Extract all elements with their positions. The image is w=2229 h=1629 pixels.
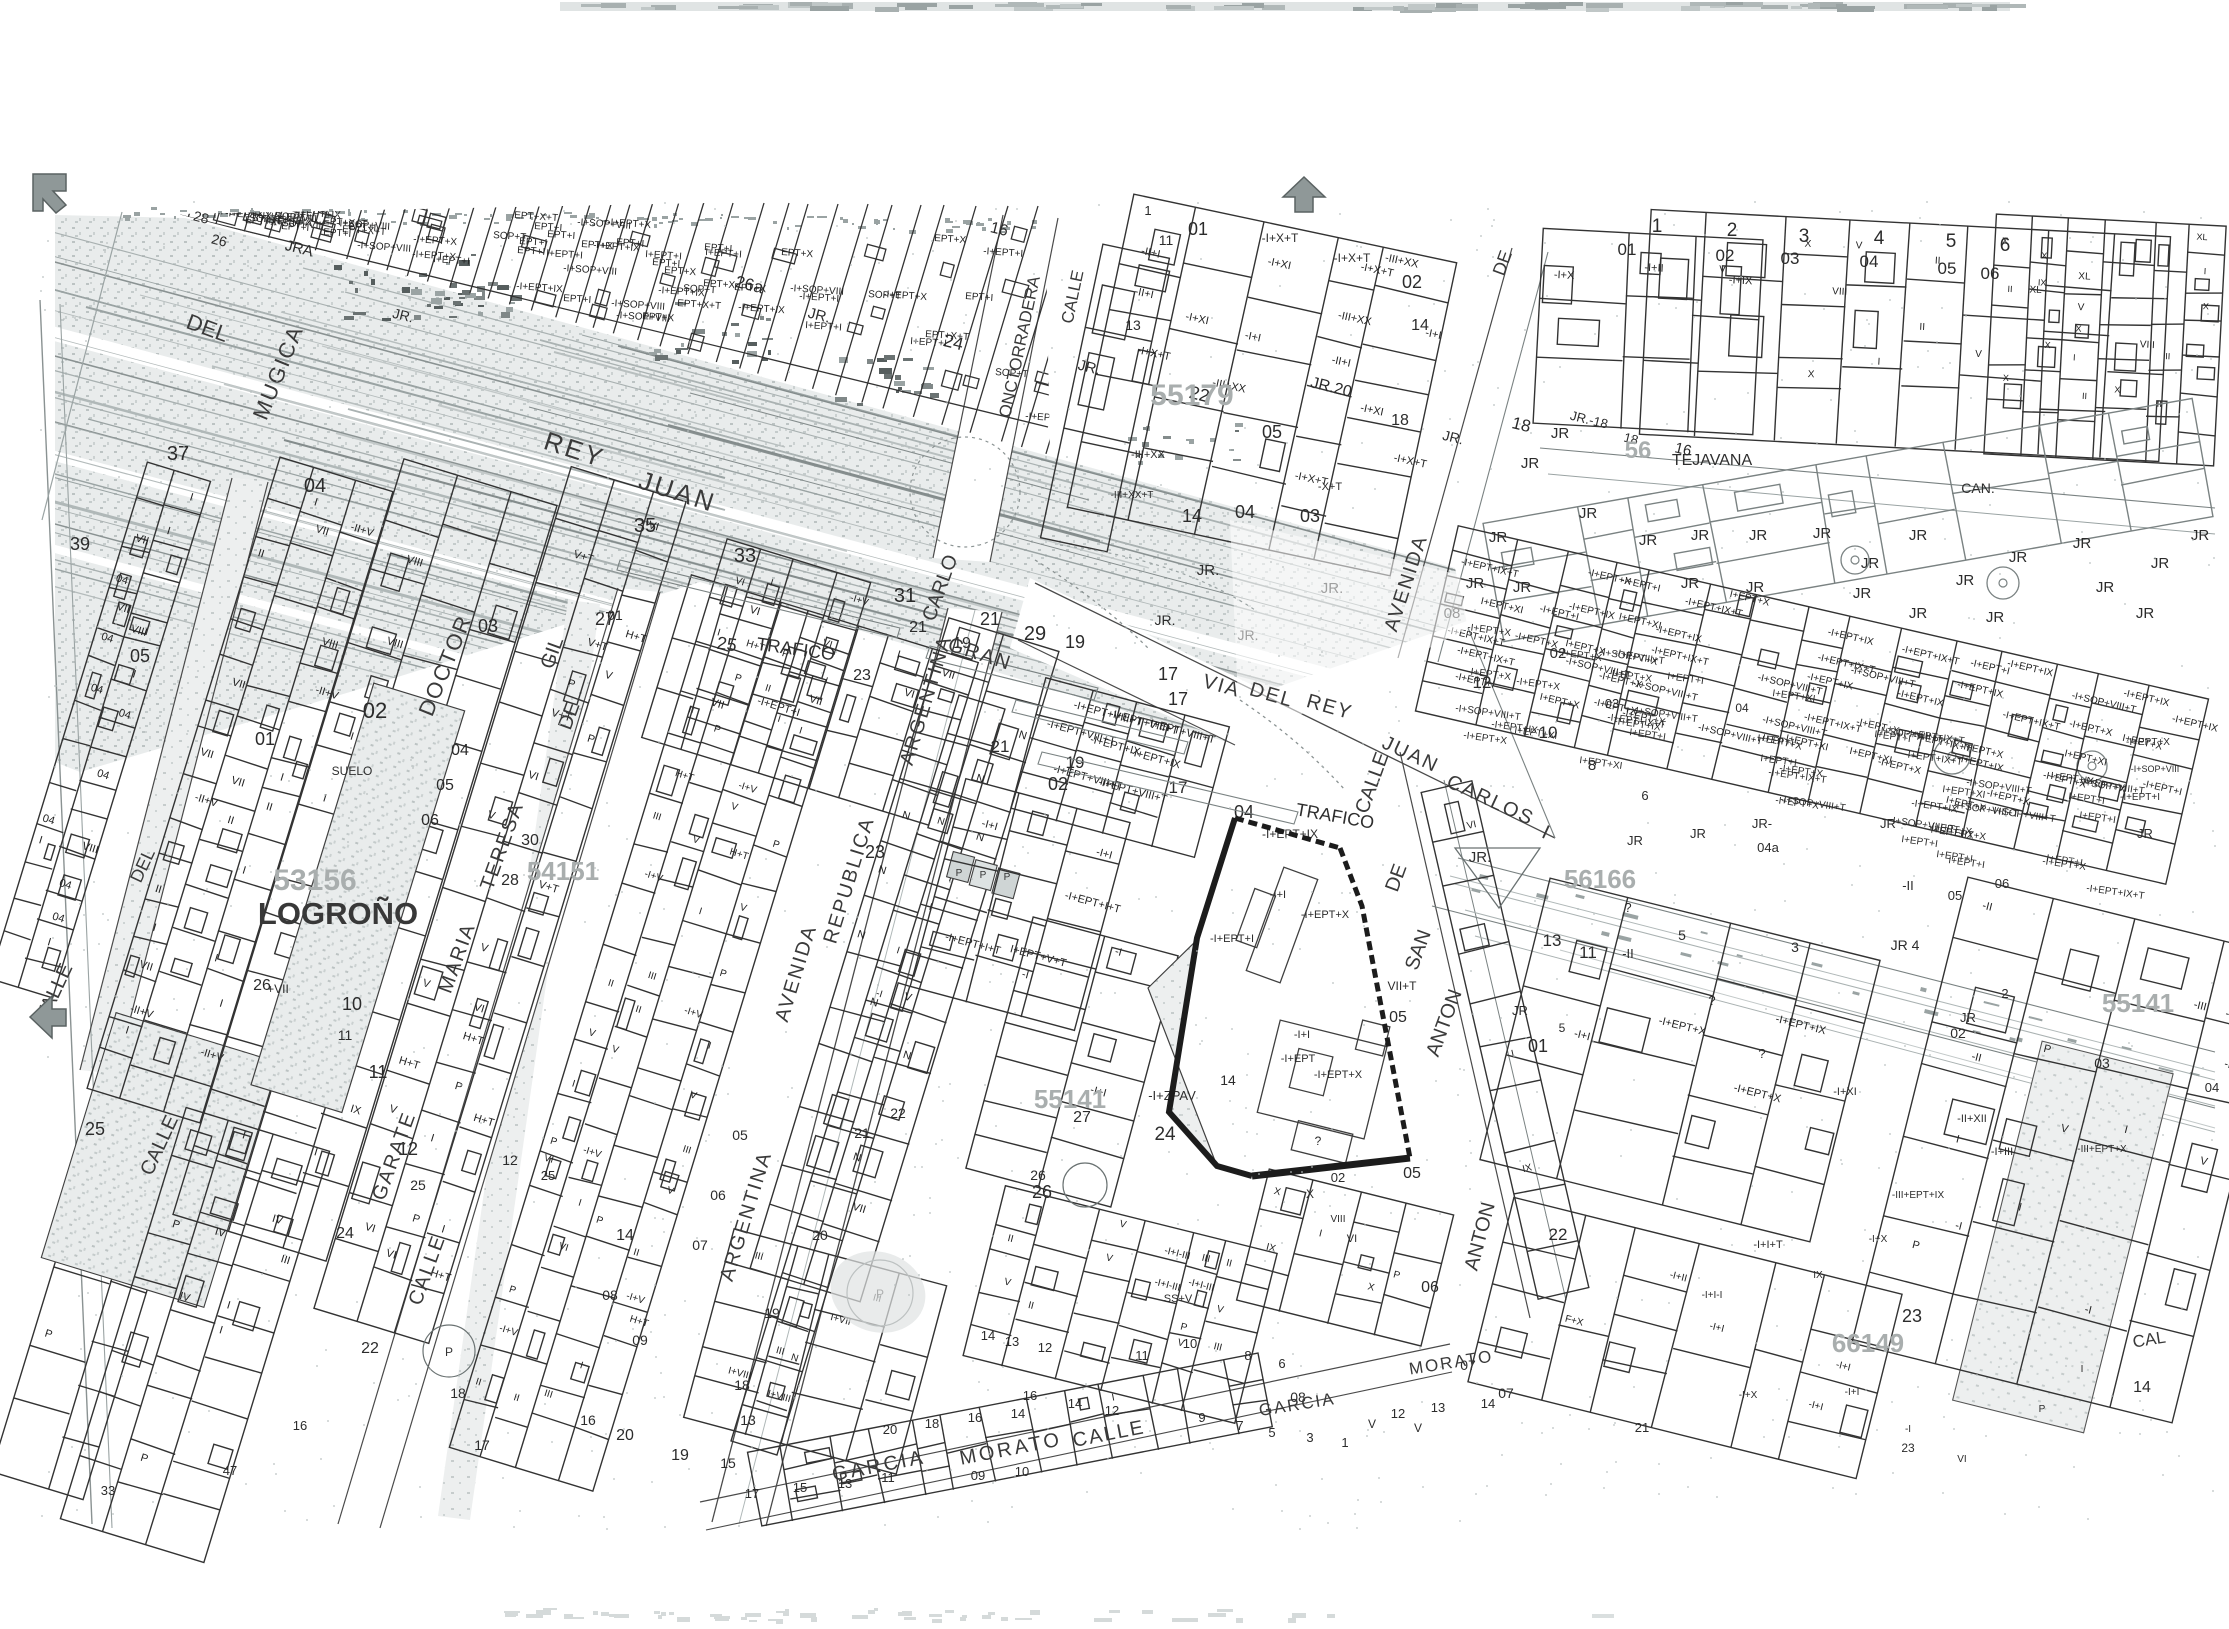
- svg-text:33: 33: [734, 545, 756, 567]
- svg-text:12: 12: [502, 1152, 518, 1168]
- svg-text:02: 02: [1550, 645, 1567, 662]
- svg-text:EPT+X: EPT+X: [581, 239, 614, 252]
- svg-text:3: 3: [1791, 939, 1799, 955]
- svg-text:03: 03: [478, 616, 498, 636]
- svg-text:JR: JR: [1489, 529, 1508, 546]
- svg-text:23: 23: [1901, 1441, 1915, 1455]
- svg-text:16: 16: [1023, 1388, 1037, 1403]
- svg-text:39: 39: [70, 534, 90, 554]
- svg-text:14: 14: [1182, 506, 1202, 526]
- svg-text:JR: JR: [2096, 579, 2115, 596]
- svg-text:V: V: [1368, 1417, 1376, 1431]
- svg-text:25: 25: [85, 1119, 105, 1139]
- svg-text:17: 17: [1168, 689, 1188, 709]
- svg-text:JR.: JR.: [1469, 849, 1492, 866]
- svg-text:02: 02: [1716, 246, 1735, 265]
- svg-text:JR: JR: [2151, 555, 2170, 572]
- svg-text:-III+EPT+X: -III+EPT+X: [2077, 1144, 2127, 1155]
- svg-text:JR: JR: [1909, 605, 1928, 622]
- svg-text:18: 18: [450, 1385, 466, 1401]
- svg-text:CAN.: CAN.: [1961, 480, 1994, 496]
- svg-text:8: 8: [1244, 1348, 1251, 1363]
- svg-text:-I+EPT+X: -I+EPT+X: [1314, 1069, 1363, 1081]
- svg-text:07: 07: [692, 1237, 708, 1253]
- svg-text:II: II: [2165, 351, 2171, 361]
- svg-text:JR: JR: [1639, 532, 1658, 549]
- svg-text:I: I: [1877, 357, 1880, 368]
- svg-text:I: I: [2081, 1364, 2084, 1375]
- svg-text:V: V: [1975, 349, 1983, 360]
- svg-text:01: 01: [1188, 219, 1208, 239]
- svg-text:VII+T: VII+T: [1387, 979, 1417, 993]
- svg-text:21: 21: [980, 609, 1000, 629]
- svg-text:03: 03: [2094, 1055, 2110, 1071]
- svg-text:04: 04: [2205, 1080, 2219, 1095]
- svg-text:21: 21: [1635, 1420, 1649, 1435]
- svg-text:10: 10: [1539, 723, 1558, 742]
- svg-text:I: I: [2073, 352, 2076, 362]
- svg-text:14: 14: [1411, 317, 1429, 334]
- svg-text:II: II: [1919, 322, 1925, 333]
- svg-text:6: 6: [1641, 788, 1648, 803]
- svg-text:02: 02: [1331, 1170, 1345, 1185]
- svg-text:?: ?: [1708, 993, 1715, 1008]
- svg-text:-I+EPT+I: -I+EPT+I: [2120, 792, 2160, 803]
- svg-text:01: 01: [255, 729, 275, 749]
- svg-text:05: 05: [1403, 1165, 1421, 1182]
- svg-text:33: 33: [101, 1483, 115, 1498]
- svg-text:13: 13: [1543, 931, 1562, 950]
- svg-text:VIII: VIII: [1330, 1214, 1345, 1225]
- svg-text:X: X: [1808, 369, 1816, 380]
- svg-text:14: 14: [1068, 1396, 1082, 1411]
- svg-text:-I+III: -I+III: [1991, 1146, 2013, 1158]
- svg-text:-I+XI: -I+XI: [1833, 1086, 1857, 1098]
- svg-text:04: 04: [1235, 502, 1255, 522]
- svg-text:14: 14: [1011, 1406, 1025, 1421]
- svg-text:06: 06: [710, 1187, 726, 1203]
- svg-text:X: X: [2114, 385, 2121, 395]
- svg-text:30: 30: [521, 832, 539, 849]
- svg-text:JR: JR: [2009, 549, 2028, 566]
- svg-text:1: 1: [1341, 1435, 1348, 1450]
- svg-text:JR: JR: [2191, 527, 2210, 544]
- svg-text:21: 21: [909, 619, 927, 636]
- svg-text:JR.: JR.: [1155, 612, 1176, 628]
- svg-text:02: 02: [363, 698, 387, 723]
- svg-text:-I+EPT+X: -I+EPT+X: [1301, 909, 1350, 921]
- svg-text:EPT+I: EPT+I: [323, 227, 352, 240]
- svg-text:47: 47: [223, 1463, 237, 1478]
- svg-text:-III+EPT+IX: -III+EPT+IX: [1892, 1190, 1945, 1201]
- svg-text:10: 10: [1183, 1336, 1197, 1351]
- svg-text:11: 11: [338, 1027, 353, 1043]
- svg-text:18: 18: [1391, 412, 1409, 429]
- svg-text:05: 05: [1938, 259, 1957, 278]
- svg-text:XL: XL: [2196, 232, 2208, 243]
- svg-text:-I+I+T: -I+I+T: [1753, 1239, 1783, 1251]
- svg-text:25: 25: [541, 1168, 555, 1183]
- svg-text:11: 11: [1135, 1348, 1149, 1363]
- svg-text:VIII: VIII: [2140, 339, 2156, 351]
- svg-text:-II: -II: [1622, 946, 1634, 961]
- svg-text:-I: -I: [1905, 1424, 1911, 1435]
- svg-text:EPT+X: EPT+X: [642, 311, 675, 324]
- svg-text:VI: VI: [1347, 1233, 1357, 1245]
- svg-text:-I+SOP+VIII: -I+SOP+VIII: [2131, 764, 2180, 774]
- svg-text:JR: JR: [1853, 585, 1872, 602]
- svg-text:-I+I: -I+I: [1270, 889, 1286, 901]
- svg-text:JR: JR: [2137, 826, 2153, 841]
- svg-text:12: 12: [1391, 1406, 1405, 1421]
- svg-text:05: 05: [732, 1127, 748, 1143]
- svg-text:JR: JR: [1551, 425, 1570, 442]
- svg-text:5: 5: [1678, 927, 1686, 943]
- svg-text:-I+EPT+X: -I+EPT+X: [2126, 737, 2170, 748]
- svg-text:17: 17: [1158, 664, 1178, 684]
- svg-text:35: 35: [634, 515, 656, 537]
- svg-text:04: 04: [1860, 252, 1879, 271]
- svg-text:01: 01: [607, 607, 623, 623]
- svg-text:22: 22: [361, 1340, 379, 1357]
- svg-text:7: 7: [1236, 1418, 1243, 1433]
- svg-text:9: 9: [1198, 1410, 1205, 1425]
- svg-text:12: 12: [1105, 1403, 1119, 1418]
- svg-text:17: 17: [745, 1486, 759, 1501]
- svg-text:05: 05: [1262, 422, 1282, 442]
- svg-text:-II: -II: [1902, 878, 1914, 893]
- svg-text:22: 22: [1549, 1225, 1568, 1244]
- svg-text:19: 19: [671, 1447, 689, 1464]
- svg-text:?: ?: [1315, 1134, 1322, 1148]
- svg-text:13: 13: [1431, 1400, 1445, 1415]
- svg-text:V: V: [1414, 1421, 1422, 1435]
- svg-text:EPT+I: EPT+I: [563, 293, 592, 306]
- svg-text:24: 24: [1154, 1124, 1176, 1145]
- svg-text:20: 20: [616, 1427, 634, 1444]
- svg-text:06: 06: [1981, 264, 2000, 283]
- svg-text:JR: JR: [1521, 455, 1540, 472]
- svg-text:14: 14: [981, 1328, 995, 1343]
- svg-text:03: 03: [1781, 249, 1800, 268]
- svg-text:IX: IX: [1813, 1270, 1823, 1281]
- svg-text:19: 19: [1066, 753, 1085, 772]
- svg-text:I: I: [2203, 266, 2206, 276]
- svg-text:05: 05: [130, 646, 150, 666]
- svg-text:22: 22: [890, 1105, 906, 1121]
- svg-text:VI: VI: [1957, 1454, 1966, 1465]
- svg-text:01: 01: [1528, 1036, 1548, 1056]
- svg-text:23: 23: [853, 667, 871, 684]
- svg-text:16: 16: [293, 1418, 307, 1433]
- svg-text:05: 05: [1389, 1009, 1407, 1026]
- svg-text:3: 3: [1306, 1430, 1313, 1445]
- svg-text:-III+XX+T: -III+XX+T: [1111, 490, 1154, 501]
- svg-text:23: 23: [1902, 1306, 1922, 1326]
- svg-text:V: V: [2077, 302, 2085, 313]
- svg-text:P: P: [1004, 872, 1011, 883]
- svg-text:09: 09: [632, 1332, 648, 1348]
- svg-text:-X+T: -X+T: [1318, 481, 1342, 493]
- svg-text:06: 06: [1421, 1279, 1439, 1296]
- svg-text:14: 14: [1220, 1072, 1236, 1088]
- svg-text:JR: JR: [1909, 527, 1928, 544]
- svg-text:?: ?: [1624, 900, 1631, 915]
- svg-text:EPT+X: EPT+X: [245, 215, 278, 228]
- svg-text:16: 16: [968, 1410, 982, 1425]
- svg-text:JR: JR: [1627, 833, 1643, 848]
- svg-text:56166: 56166: [1564, 864, 1636, 894]
- svg-text:08: 08: [602, 1287, 618, 1303]
- svg-text:56: 56: [1625, 437, 1652, 464]
- svg-text:EPT+I: EPT+I: [704, 242, 733, 255]
- svg-text:EPT+I: EPT+I: [965, 291, 994, 304]
- svg-text:1: 1: [1144, 203, 1151, 218]
- svg-text:X: X: [2003, 373, 2010, 383]
- svg-text:V: V: [1719, 264, 1727, 275]
- svg-text:03: 03: [1605, 696, 1619, 711]
- svg-text:LOGROÑO: LOGROÑO: [258, 896, 418, 931]
- svg-text:55141: 55141: [2102, 988, 2174, 1018]
- svg-text:17: 17: [1169, 778, 1188, 797]
- svg-text:JR 4: JR 4: [1891, 937, 1920, 953]
- svg-text:10: 10: [1015, 1464, 1029, 1479]
- svg-text:EPT+I: EPT+I: [547, 229, 576, 242]
- svg-text:20: 20: [812, 1227, 828, 1243]
- svg-text:04a: 04a: [1757, 840, 1779, 855]
- svg-text:X: X: [2044, 340, 2051, 350]
- svg-text:II: II: [2007, 284, 2013, 294]
- svg-text:19: 19: [1065, 632, 1085, 652]
- svg-text:04: 04: [451, 742, 469, 759]
- svg-text:P: P: [445, 1345, 453, 1359]
- svg-text:-I+EPT+I: -I+EPT+I: [1210, 933, 1254, 945]
- svg-text:04: 04: [304, 475, 326, 497]
- svg-text:JR: JR: [1749, 527, 1768, 544]
- svg-text:II: II: [2082, 391, 2088, 401]
- svg-text:26: 26: [1030, 1167, 1046, 1183]
- svg-text:55179: 55179: [1150, 379, 1233, 412]
- svg-text:06: 06: [421, 812, 439, 829]
- svg-text:09: 09: [971, 1468, 985, 1483]
- svg-text:6: 6: [2000, 235, 2011, 256]
- svg-text:JR: JR: [1579, 505, 1598, 522]
- svg-text:SS+V: SS+V: [1164, 1293, 1193, 1305]
- svg-text:6: 6: [1278, 1356, 1285, 1371]
- svg-text:-I+EPT: -I+EPT: [1281, 1053, 1316, 1065]
- svg-text:P: P: [956, 868, 963, 879]
- svg-text:02: 02: [1048, 774, 1068, 794]
- svg-text:18: 18: [925, 1416, 939, 1431]
- svg-text:JR: JR: [2073, 535, 2092, 552]
- svg-text:13: 13: [1125, 317, 1141, 333]
- svg-text:-I+X: -I+X: [1869, 1234, 1888, 1245]
- svg-text:11: 11: [1579, 943, 1597, 962]
- svg-text:?: ?: [1758, 1046, 1765, 1061]
- svg-text:-I+X+T: -I+X+T: [1334, 251, 1371, 265]
- svg-text:-I+X+T: -I+X+T: [1262, 231, 1299, 245]
- svg-text:XL: XL: [2078, 271, 2091, 283]
- svg-text:-I+X: -I+X: [1739, 1390, 1758, 1401]
- svg-text:29: 29: [1024, 623, 1046, 645]
- svg-text:X: X: [1306, 1187, 1314, 1201]
- svg-text:JR: JR: [1861, 555, 1880, 572]
- svg-text:25: 25: [716, 633, 739, 656]
- svg-text:SOP+T: SOP+T: [868, 289, 902, 302]
- svg-text:IX: IX: [2038, 277, 2047, 287]
- svg-text:55141: 55141: [1034, 1084, 1106, 1114]
- svg-text:31: 31: [894, 585, 916, 607]
- svg-text:04: 04: [1735, 701, 1749, 715]
- svg-text:EPT+X: EPT+X: [934, 233, 967, 246]
- svg-text:X: X: [2075, 323, 2082, 333]
- svg-text:12: 12: [1473, 673, 1492, 692]
- svg-text:4: 4: [1874, 228, 1885, 249]
- svg-text:JR: JR: [2136, 605, 2155, 622]
- svg-text:02: 02: [1402, 272, 1422, 292]
- svg-text:01: 01: [1618, 240, 1637, 259]
- svg-text:VIII: VIII: [1832, 286, 1848, 298]
- svg-text:14: 14: [1481, 1396, 1495, 1411]
- svg-text:EPT+X: EPT+X: [781, 247, 814, 260]
- svg-text:10: 10: [342, 994, 362, 1014]
- svg-text:JR: JR: [1880, 816, 1896, 831]
- svg-text:-I+X: -I+X: [1554, 269, 1576, 282]
- svg-text:15: 15: [793, 1480, 807, 1495]
- svg-text:25: 25: [410, 1177, 426, 1193]
- svg-text:JR: JR: [1956, 572, 1975, 589]
- svg-text:-I+I-I: -I+I-I: [1702, 1290, 1723, 1301]
- svg-text:14: 14: [616, 1227, 634, 1244]
- svg-text:06: 06: [1995, 876, 2009, 891]
- svg-text:8: 8: [1588, 757, 1596, 774]
- svg-text:3: 3: [1799, 226, 1810, 247]
- svg-text:JR: JR: [1512, 1003, 1528, 1018]
- svg-text:JR: JR: [1986, 609, 2005, 626]
- svg-text:P: P: [2039, 1404, 2046, 1415]
- svg-text:28: 28: [501, 872, 519, 889]
- svg-text:05: 05: [1948, 888, 1962, 903]
- svg-text:2: 2: [1727, 220, 1738, 241]
- svg-text:11: 11: [1159, 232, 1174, 248]
- svg-text:-III+XX: -III+XX: [1131, 449, 1166, 461]
- svg-text:13: 13: [1005, 1334, 1019, 1349]
- svg-text:-I+I: -I+I: [1845, 1387, 1860, 1398]
- svg-text:-II+XII: -II+XII: [1957, 1113, 1987, 1125]
- svg-text:SOP+T: SOP+T: [493, 230, 527, 243]
- svg-text:14: 14: [2133, 1379, 2151, 1396]
- svg-text:JR: JR: [1690, 826, 1706, 841]
- svg-text:1: 1: [1652, 216, 1663, 237]
- svg-text:66149: 66149: [1832, 1328, 1904, 1358]
- svg-text:5: 5: [1559, 1021, 1566, 1035]
- svg-text:26: 26: [1032, 1182, 1052, 1202]
- svg-text:EPT+I: EPT+I: [652, 257, 681, 270]
- svg-text:5: 5: [1268, 1425, 1275, 1440]
- svg-text:15: 15: [720, 1455, 736, 1471]
- svg-text:12: 12: [1038, 1340, 1052, 1355]
- svg-text:21: 21: [854, 1125, 870, 1141]
- svg-text:X: X: [2041, 251, 2048, 261]
- svg-text:5: 5: [1946, 231, 1957, 252]
- svg-text:+VII: +VII: [267, 982, 289, 996]
- svg-text:53156: 53156: [273, 864, 356, 897]
- svg-text:17: 17: [474, 1437, 490, 1453]
- svg-text:JR: JR: [1813, 525, 1832, 542]
- svg-text:20: 20: [883, 1422, 897, 1437]
- svg-text:P: P: [980, 870, 987, 881]
- svg-text:05: 05: [436, 777, 454, 794]
- svg-text:-I+I: -I+I: [1294, 1029, 1310, 1041]
- svg-text:54151: 54151: [527, 856, 599, 886]
- svg-text:24: 24: [336, 1225, 354, 1242]
- svg-text:03: 03: [1300, 506, 1320, 526]
- svg-text:SUELO: SUELO: [332, 764, 373, 778]
- svg-text:X: X: [2203, 301, 2210, 311]
- svg-text:V: V: [1855, 240, 1863, 251]
- svg-text:02: 02: [1950, 1025, 1966, 1041]
- svg-text:JR-: JR-: [1752, 816, 1772, 831]
